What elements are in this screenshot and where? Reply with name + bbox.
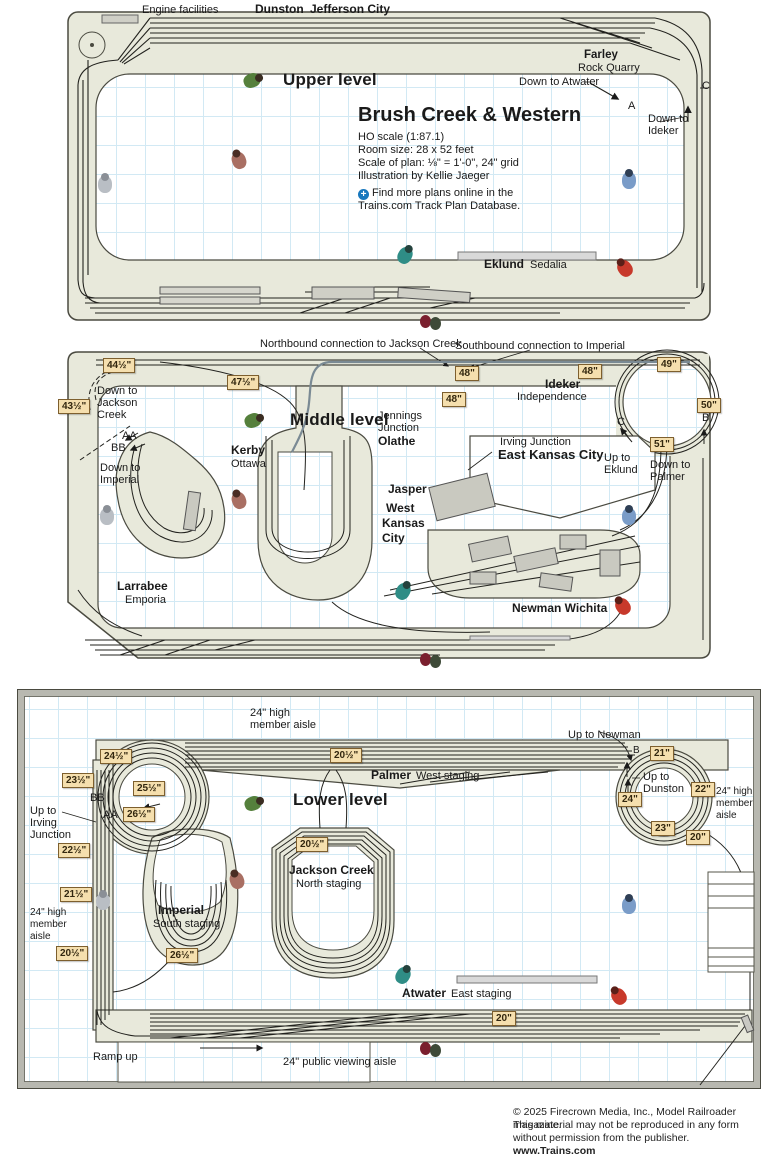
badge-50: 50" [697,398,721,413]
label-public-viewing-aisle: 24" public viewing aisle [283,1056,396,1069]
label-ottawa: Ottawa [231,458,266,471]
label-jennings-2: Junction [378,422,419,435]
label-aisle-top-2: member aisle [250,719,316,732]
label-lower-level: Lower level [293,790,388,810]
atwater-platform [457,976,597,983]
person-pair-figure [420,315,442,330]
badge-43-5: 43½" [58,399,90,414]
badge-20-right: 20" [686,830,710,845]
label-down-palmer-1: Down to [650,459,690,472]
label-eklund: Eklund [484,258,524,272]
label-illustrator: Illustration by Kellie Jaeger [358,170,489,183]
copyright-website: www.Trains.com [513,1145,595,1158]
label-palmer: Palmer [371,769,411,783]
label-jefferson-city: Jefferson City [310,3,390,17]
track-plan-page: Engine facilities Dunston Jefferson City… [0,0,768,1159]
badge-20-5-left: 20½" [56,946,88,961]
badge-21-5: 21½" [60,887,92,902]
label-aisle-right-3: aisle [716,810,737,822]
label-farley: Farley [584,49,618,62]
promo-line-1: +Find more plans online in the [358,187,513,200]
eklund-platform [458,252,596,260]
badge-22: 22" [691,782,715,797]
badge-22-5: 22½" [58,843,90,858]
label-down-jackson-2: Jackson [97,397,137,410]
label-point-c-upper: C [702,80,710,93]
person-figure [96,893,110,910]
label-plan-scale: Scale of plan: ⅛" = 1'-0", 24" grid [358,157,519,170]
badge-20-bottom: 20" [492,1011,516,1026]
jackson-creek-aisle [292,846,374,950]
badge-25-5: 25½" [133,781,165,796]
label-down-to-ideker-2: Ideker [648,125,679,138]
badge-26-5-imperial: 26½" [166,948,198,963]
label-jackson-creek: Jackson Creek [289,864,374,878]
label-up-dunston-2: Dunston [643,783,684,796]
label-aa-middle: AA [122,430,137,443]
person-figure [622,897,636,914]
label-down-imperial-2: Imperial [100,474,139,487]
label-west-kc-3: City [382,532,405,546]
label-atwater: Atwater [402,987,446,1001]
badge-48-c: 48" [578,364,602,379]
label-up-irving-3: Junction [30,829,71,842]
imperial-aisle [153,834,226,912]
newman-platform [470,636,570,640]
label-down-jackson-1: Down to [97,385,137,398]
label-down-to-atwater: Down to Atwater [519,76,599,89]
badge-24: 24" [618,792,642,807]
person-figure [622,508,636,525]
label-emporia: Emporia [125,594,166,607]
badge-23-5: 23½" [62,773,94,788]
label-newman-wichita: Newman Wichita [512,602,607,616]
label-ramp-up: Ramp up [93,1051,138,1064]
label-bb-middle: BB [111,442,126,455]
label-aisle-left-3: aisle [30,931,51,943]
label-engine-facilities: Engine facilities [142,4,218,17]
label-point-b-lower: B [633,745,640,757]
label-aisle-left-2: member [30,919,67,931]
label-sedalia: Sedalia [530,259,567,272]
lower-level-plan [0,680,768,1100]
label-middle-level: Middle level [290,410,389,430]
label-scale: HO scale (1:87.1) [358,131,444,144]
label-east-kansas-city: East Kansas City [498,448,604,463]
label-rock-quarry: Rock Quarry [578,62,640,75]
label-north-staging: North staging [296,878,361,891]
label-down-to-ideker-1: Down to [648,113,688,126]
person-pair-figure [420,1042,442,1057]
label-up-eklund-2: Eklund [604,464,638,477]
label-point-b-middle: B [702,412,709,425]
badge-48-b: 48" [442,392,466,407]
badge-47-5: 47½" [227,375,259,390]
label-west-kc-1: West [386,502,414,516]
label-west-kc-2: Kansas [382,517,425,531]
plus-circle-icon: + [358,189,369,200]
label-down-palmer-2: Palmer [650,471,685,484]
label-up-irving-2: Irving [30,817,57,830]
label-imperial: Imperial [158,904,204,918]
label-down-imperial-1: Down to [100,462,140,475]
label-aa-lower: AA [103,809,118,822]
promo-line-2: Trains.com Track Plan Database. [358,200,520,213]
badge-21: 21" [650,746,674,761]
badge-20-5-jc: 20½" [296,837,328,852]
badge-26-5-left: 26½" [123,807,155,822]
copyright-line-2: This material may not be reproduced in a… [513,1119,739,1132]
label-up-newman: Up to Newman [568,729,641,742]
badge-23: 23" [651,821,675,836]
label-kerby: Kerby [231,444,265,458]
label-southbound-connection: Southbound connection to Imperial [455,340,625,353]
copyright-line-3: without permission from the publisher. [513,1132,689,1145]
label-olathe: Olathe [378,435,415,449]
label-aisle-top-1: 24" high [250,707,290,720]
label-bb-lower: BB [90,792,105,805]
label-northbound-connection: Northbound connection to Jackson Creek [260,338,462,351]
badge-44-5: 44½" [103,358,135,373]
label-up-dunston-1: Up to [643,771,669,784]
label-ideker: Ideker [545,378,580,392]
person-figure [100,508,114,525]
badge-49: 49" [657,357,681,372]
badge-51: 51" [650,437,674,452]
label-aisle-left-1: 24" high [30,907,66,919]
label-room-size: Room size: 28 x 52 feet [358,144,474,157]
label-up-eklund-1: Up to [604,452,630,465]
label-aisle-right-2: member [716,798,753,810]
label-dunston: Dunston [255,3,304,17]
person-pair-figure [420,653,442,668]
person-figure [622,172,636,189]
label-point-c-middle: C [617,416,625,429]
label-point-a: A [628,100,635,113]
label-jennings-1: Jennings [378,410,422,423]
label-jasper: Jasper [388,483,427,497]
label-west-staging: West staging [416,770,479,783]
label-independence: Independence [517,391,587,404]
label-down-jackson-3: Creek [97,409,126,422]
label-up-irving-1: Up to [30,805,56,818]
person-figure [98,176,112,193]
badge-20-5-top: 20½" [330,748,362,763]
label-point-a-lower: A [624,762,631,774]
badge-24-5: 24½" [100,749,132,764]
label-aisle-right-1: 24" high [716,786,752,798]
label-south-staging: South staging [153,918,220,931]
label-east-staging: East staging [451,988,512,1001]
page-title: Brush Creek & Western [358,104,581,127]
label-larrabee: Larrabee [117,580,168,594]
label-upper-level: Upper level [283,70,377,90]
badge-48-a: 48" [455,366,479,381]
